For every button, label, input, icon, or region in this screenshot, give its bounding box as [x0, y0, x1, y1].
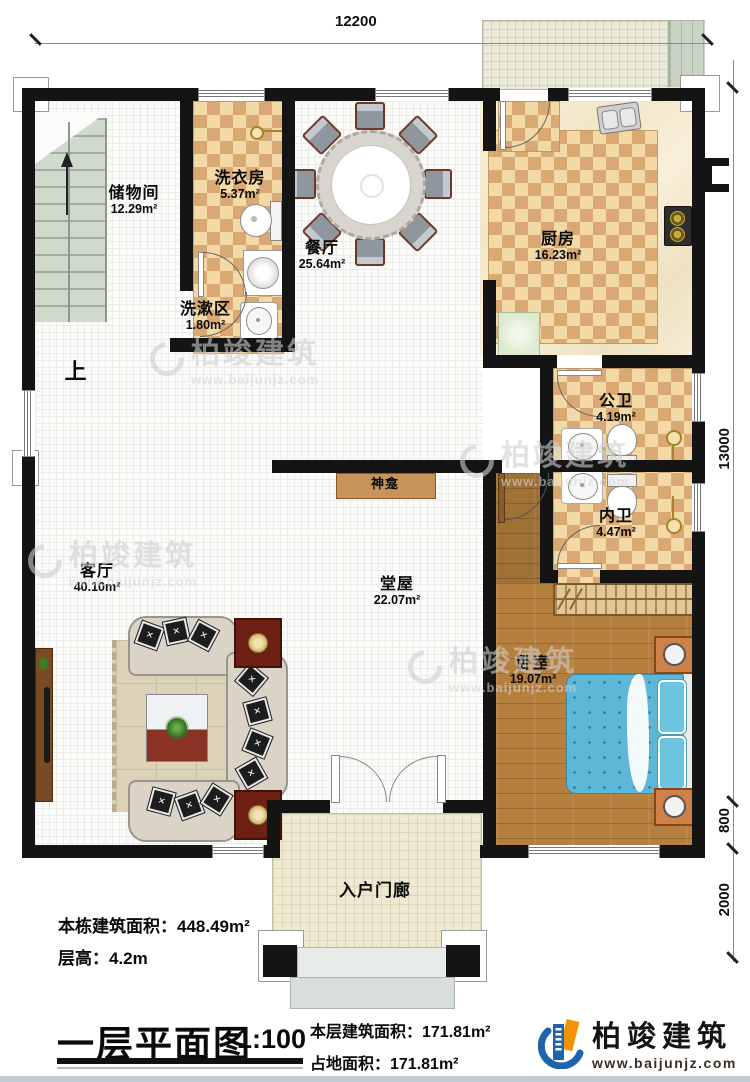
shrine-label: 神龛 — [336, 477, 434, 491]
dimension-line-top — [35, 43, 710, 44]
footprint-area-text: 占地面积：171.81m² — [310, 1050, 459, 1074]
room-label-washarea: 洗漱区1.80m² — [158, 301, 253, 332]
room-label-innerbath: 内卫4.47m² — [566, 508, 666, 539]
cushion: ✕ — [163, 618, 190, 645]
plant-icon — [167, 718, 187, 738]
dimension-right-main: 13000 — [716, 428, 733, 470]
side-table — [234, 618, 282, 668]
tv-cabinet — [35, 648, 53, 802]
window — [528, 845, 660, 858]
bottom-strip — [0, 1076, 750, 1082]
floor-plan: 12200 13000 800 2000 上 — [0, 0, 750, 1082]
brand-logo-icon — [538, 1015, 584, 1069]
porch-step — [297, 947, 448, 979]
faucet-pipe — [263, 130, 282, 132]
dining-table — [316, 130, 426, 240]
faucet-icon — [250, 126, 264, 140]
dimension-top: 12200 — [335, 13, 377, 30]
porch-pier — [446, 945, 480, 977]
brand-url: www.baijunjz.com — [592, 1055, 737, 1071]
pillow — [658, 736, 686, 790]
shower-head — [666, 430, 682, 446]
publicbath-sink — [561, 428, 603, 464]
table-lamp-icon — [248, 805, 268, 825]
room-label-bedroom: 卧室19.07m² — [483, 655, 583, 686]
title-underline-thin — [57, 1067, 303, 1069]
nightstand — [654, 636, 694, 674]
room-label-laundry: 洗衣房5.37m² — [190, 170, 290, 201]
brand-name: 柏竣建筑 — [592, 1013, 737, 1055]
coffee-table — [146, 694, 208, 762]
window — [692, 483, 705, 532]
table-lamp-icon — [248, 633, 268, 653]
french-door-right-leaf — [437, 755, 446, 803]
dining-chair — [355, 102, 385, 130]
kitchen-sink — [596, 101, 641, 135]
room-label-living: 客厅40.10m² — [47, 563, 147, 594]
dining-chair — [424, 169, 452, 199]
toilet — [240, 201, 282, 239]
stairs-direction-arrow — [66, 160, 68, 215]
plan-scale: 1:100 — [237, 1024, 306, 1055]
title-underline — [57, 1058, 303, 1064]
window — [22, 390, 35, 457]
shower-head — [666, 518, 682, 534]
floor-area-text: 本层建筑面积：171.81m² — [310, 1018, 491, 1042]
room-label-storage: 储物间12.29m² — [84, 185, 184, 216]
stairs-up-label: 上 — [58, 360, 94, 384]
stove — [664, 206, 692, 246]
porch-step — [290, 977, 455, 1009]
wardrobe — [553, 583, 696, 616]
room-label-kitchen: 厨房16.23m² — [508, 231, 608, 262]
building-area-text: 本栋建筑面积：448.49m² — [58, 912, 250, 937]
shower-bar — [672, 496, 674, 518]
kitchen-counter — [498, 312, 540, 356]
room-label-publicbath: 公卫4.19m² — [566, 393, 666, 424]
floor-height-text: 层高：4.2m — [58, 944, 148, 969]
window — [375, 88, 449, 101]
room-label-dining: 餐厅25.64m² — [272, 240, 372, 271]
room-label-porch: 入户门廊 — [315, 882, 435, 901]
dimension-line-right — [733, 60, 734, 962]
bedroom-door-leaf — [498, 473, 505, 523]
stairs-arrow-head — [61, 146, 73, 167]
pillow — [658, 680, 686, 734]
brand-logo: 柏竣建筑 www.baijunjz.com — [538, 1012, 738, 1072]
porch-pier — [263, 945, 297, 977]
window — [212, 845, 264, 858]
window — [568, 88, 652, 101]
innerbath-sink — [561, 468, 603, 504]
dimension-right-low: 2000 — [716, 883, 733, 916]
room-label-hall: 堂屋22.07m² — [347, 576, 447, 607]
window — [692, 373, 705, 422]
dimension-right-mid: 800 — [716, 808, 733, 833]
nightstand — [654, 788, 694, 826]
window — [198, 88, 265, 101]
